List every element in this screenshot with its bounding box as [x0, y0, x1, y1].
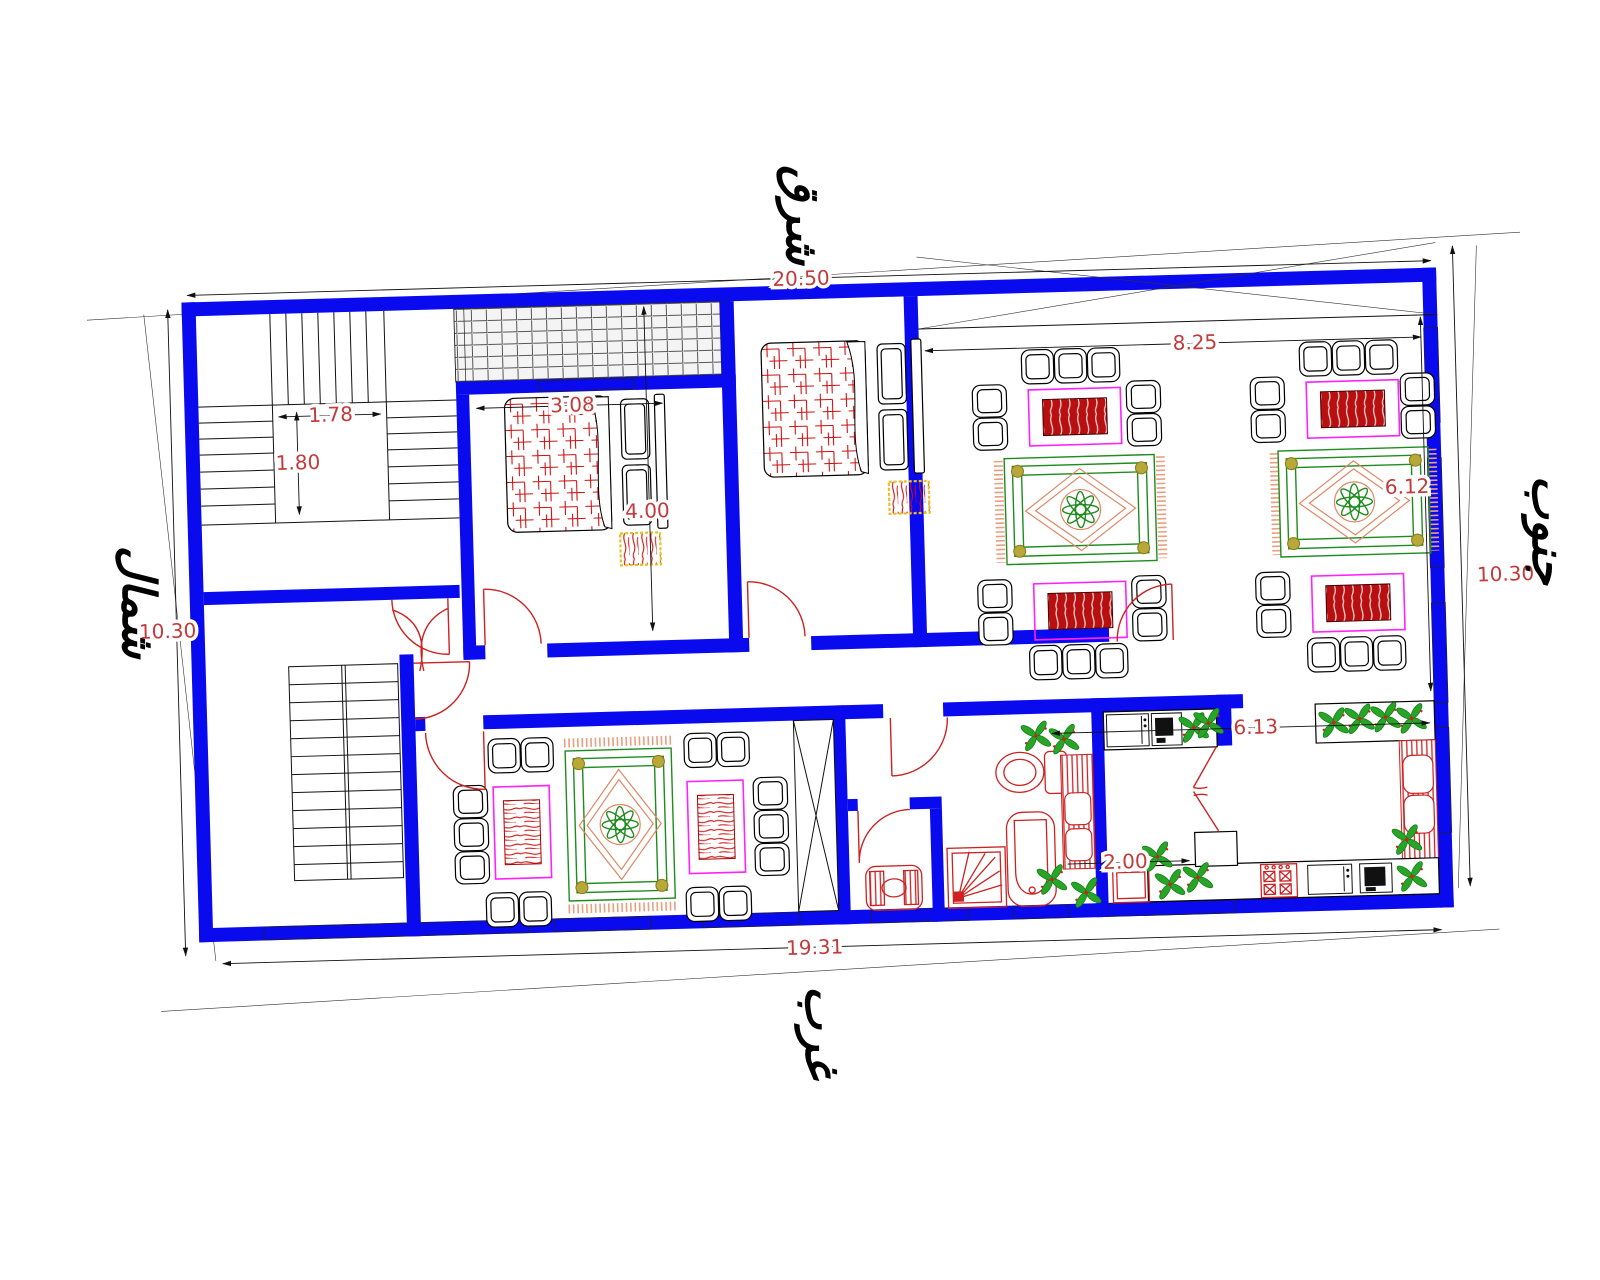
dim-overall-bottom: 19.31: [786, 934, 844, 960]
majlis-table-a1: [1028, 387, 1122, 446]
kitchen-double-door: [1192, 747, 1218, 832]
toilet: [995, 751, 1067, 795]
door-bedroom1: [484, 588, 542, 646]
compass-east-label: شرق: [775, 165, 830, 266]
shower: [947, 847, 1007, 909]
majlis-table-b1: [1306, 380, 1400, 439]
wall-bedroom1-left: [456, 395, 476, 660]
living-table-left: [493, 785, 552, 879]
wall-wc: [930, 809, 945, 922]
living-carpet: [565, 748, 675, 901]
light-shaft: [793, 720, 838, 912]
majlis-carpet-a: [1004, 454, 1157, 564]
door-corridor: [414, 662, 472, 720]
bedroom1-rug: [620, 532, 661, 565]
dim-kitchen-width: 6.13: [1233, 714, 1278, 739]
dim-majlis-depth: 6.12: [1384, 474, 1429, 499]
door-bathroom: [890, 716, 949, 776]
dim-kitchen-passage: 2.00: [1103, 849, 1148, 874]
bedroom2-rug: [889, 481, 930, 514]
compass-west-label: غرب: [794, 986, 849, 1082]
staircase-secondary: [289, 664, 404, 881]
bedroom2-bed: [761, 339, 925, 477]
dim-bedroom-depth: 4.00: [625, 498, 670, 523]
dim-stairwell-depth: 1.80: [275, 450, 320, 475]
bathtub: [1006, 811, 1057, 906]
wall-under-stairs: [204, 585, 460, 605]
majlis-seating-b: [1249, 339, 1442, 674]
majlis-carpet-b: [1278, 447, 1431, 557]
majlis-table-b2: [1312, 574, 1406, 633]
floor-plan-page: 20.50 19.31 10.30 10.30 1.78 1.80 3.08 4…: [0, 0, 1600, 1280]
balcony: [454, 301, 736, 395]
bathroom: [861, 718, 1103, 915]
family-living-room: [452, 731, 791, 928]
bedroom2: [761, 339, 930, 518]
dim-stairwell-width: 1.78: [308, 402, 353, 427]
door-bedroom2: [747, 580, 805, 638]
dim-bedroom-width: 3.08: [550, 392, 595, 417]
squat-toilet: [865, 865, 922, 911]
wall-between-bedrooms: [720, 301, 744, 652]
floor-plan-drawing: 20.50 19.31 10.30 10.30 1.78 1.80 3.08 4…: [0, 0, 1600, 1280]
wall-stair2-right: [399, 654, 421, 936]
stove-icon: [1261, 864, 1298, 898]
bedroom1: [504, 394, 669, 568]
dim-overall-top: 20.50: [772, 265, 830, 291]
door-wc: [858, 809, 911, 862]
plan-tilt-group: 20.50 19.31 10.30 10.30 1.78 1.80 3.08 4…: [86, 232, 1546, 1013]
living-table-right: [687, 780, 746, 874]
door-living: [426, 731, 486, 791]
kitchen-stub-counter: [1195, 831, 1238, 866]
bathroom-sink-counter: [1060, 754, 1095, 869]
compass-south-label: جنوب: [1521, 475, 1576, 586]
dim-majlis-width: 8.25: [1172, 330, 1217, 355]
compass-north-label: شمال: [112, 546, 166, 660]
